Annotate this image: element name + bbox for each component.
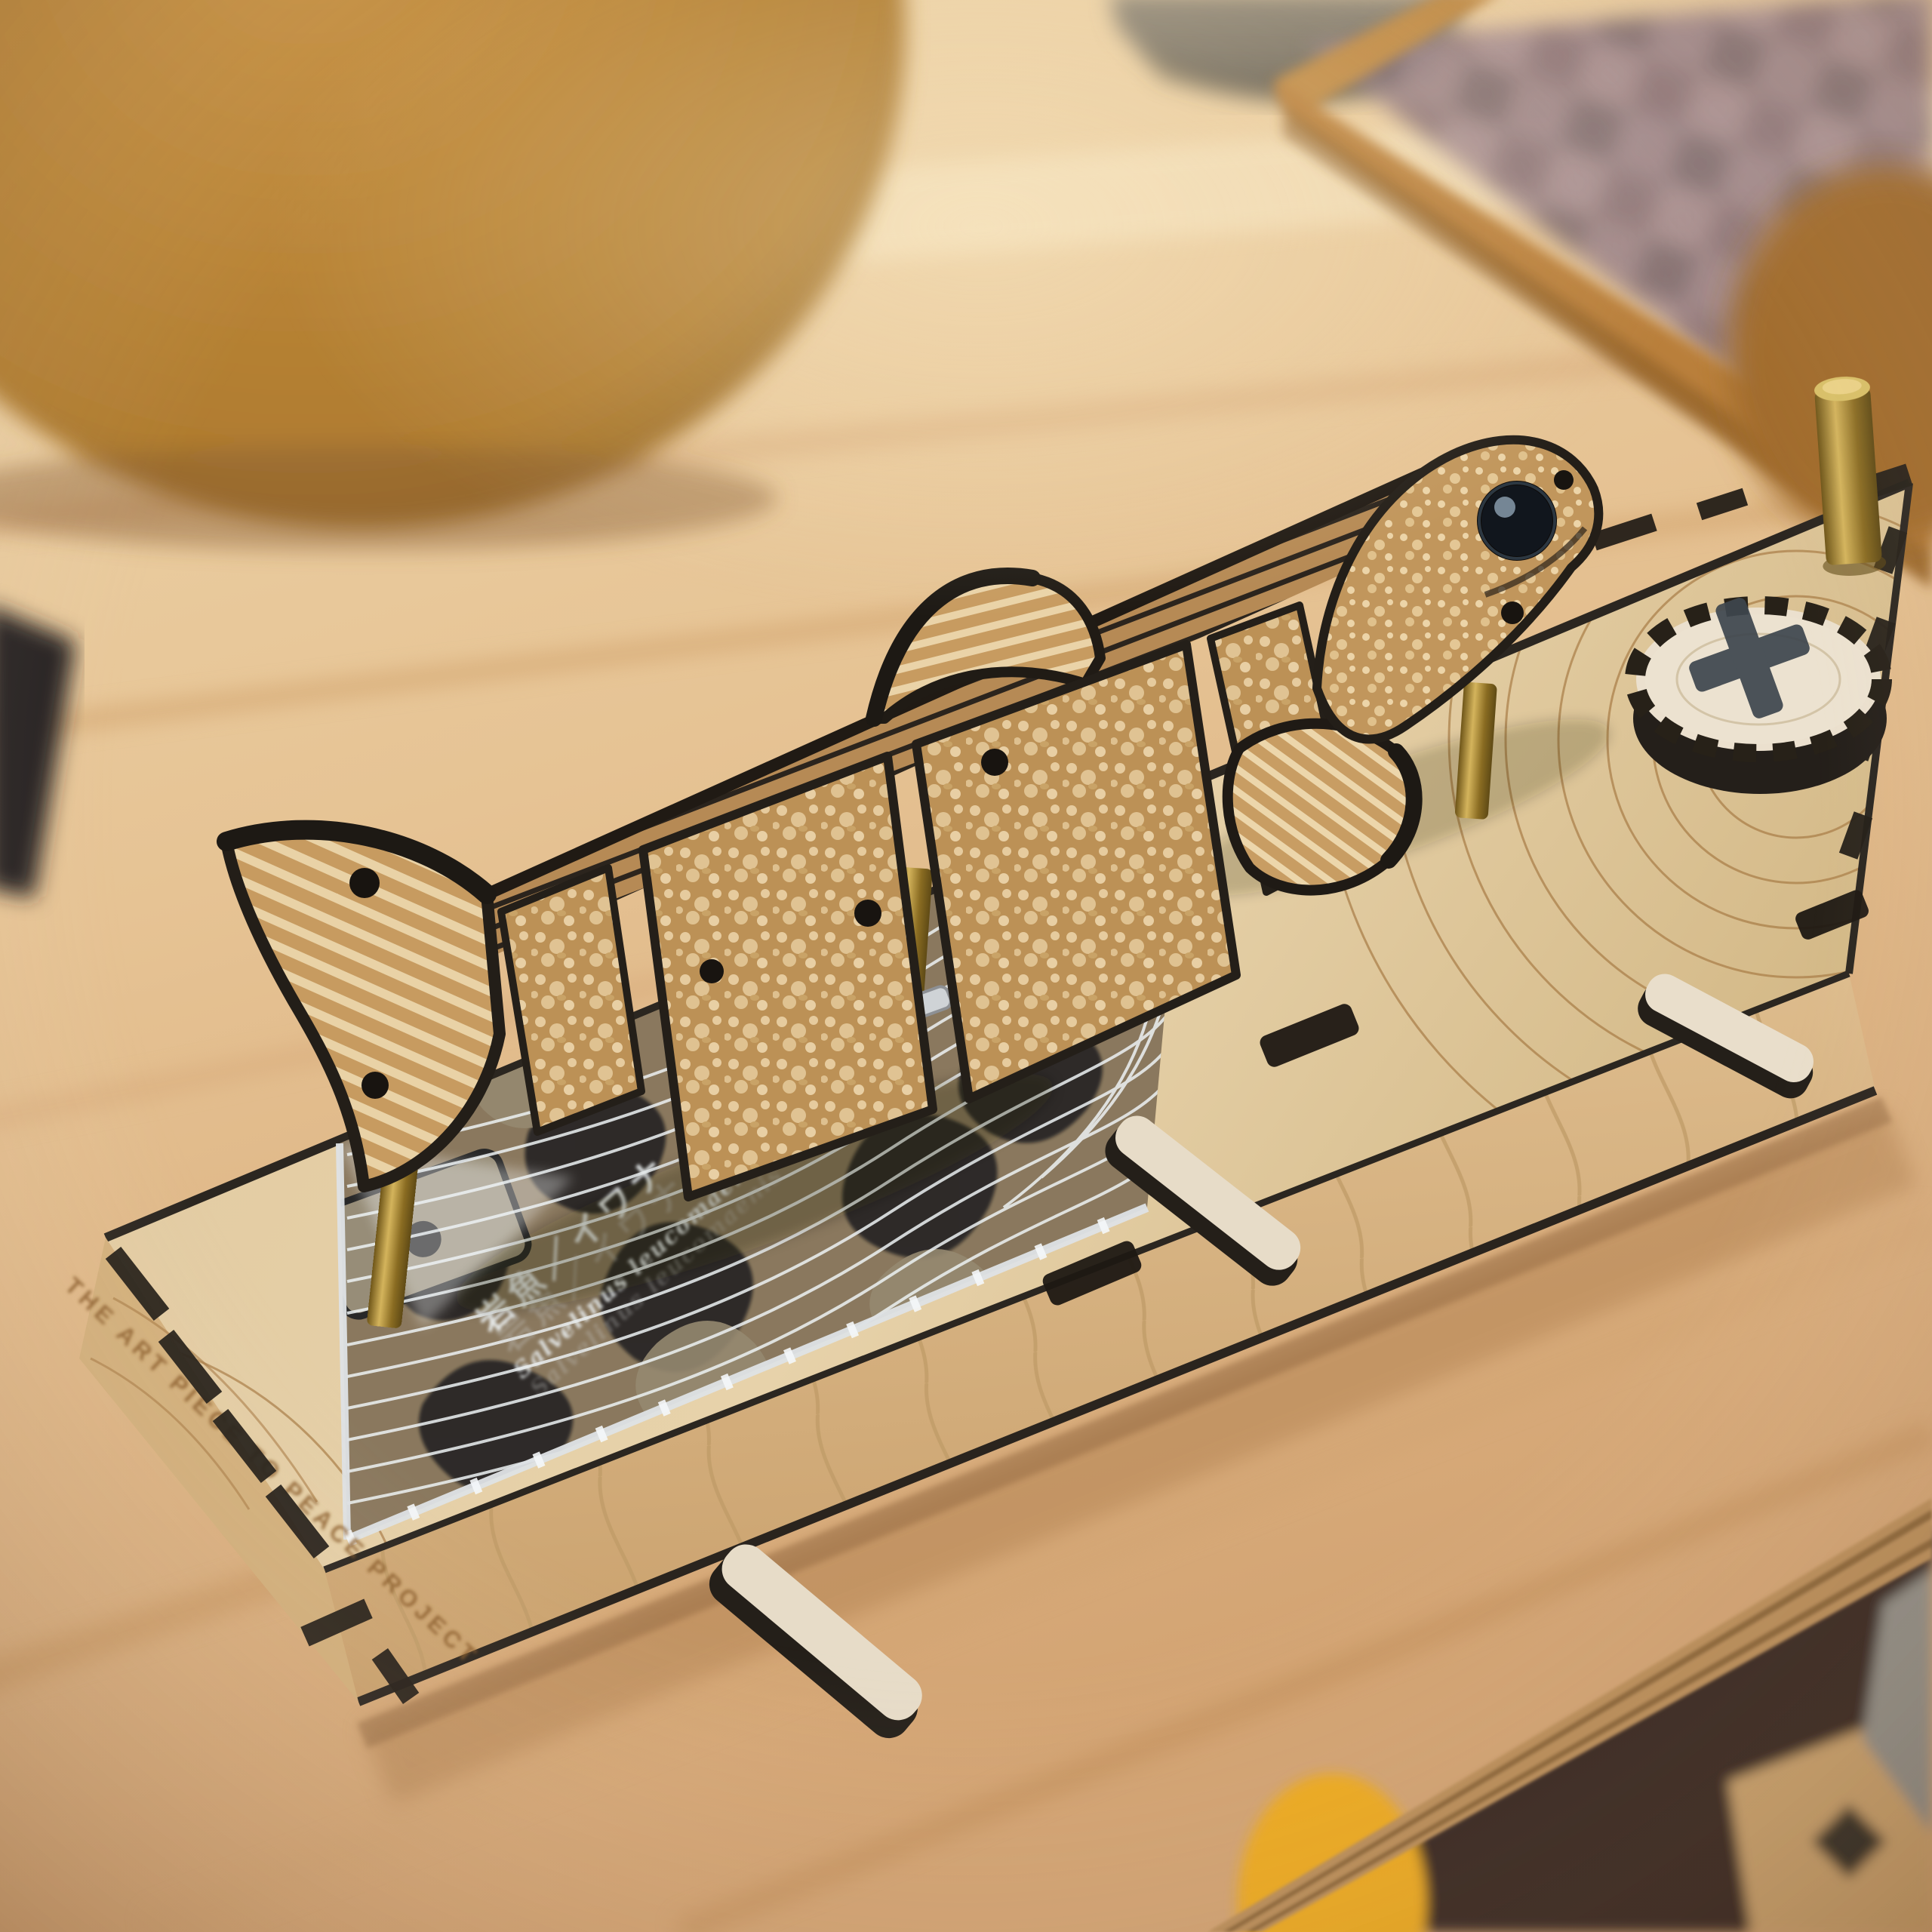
- photo-stage: 岩魚／イワナ 岩魚／イワナ Salvelinus leucomaenis Sal…: [0, 0, 1932, 1932]
- vignette: [0, 0, 1932, 1932]
